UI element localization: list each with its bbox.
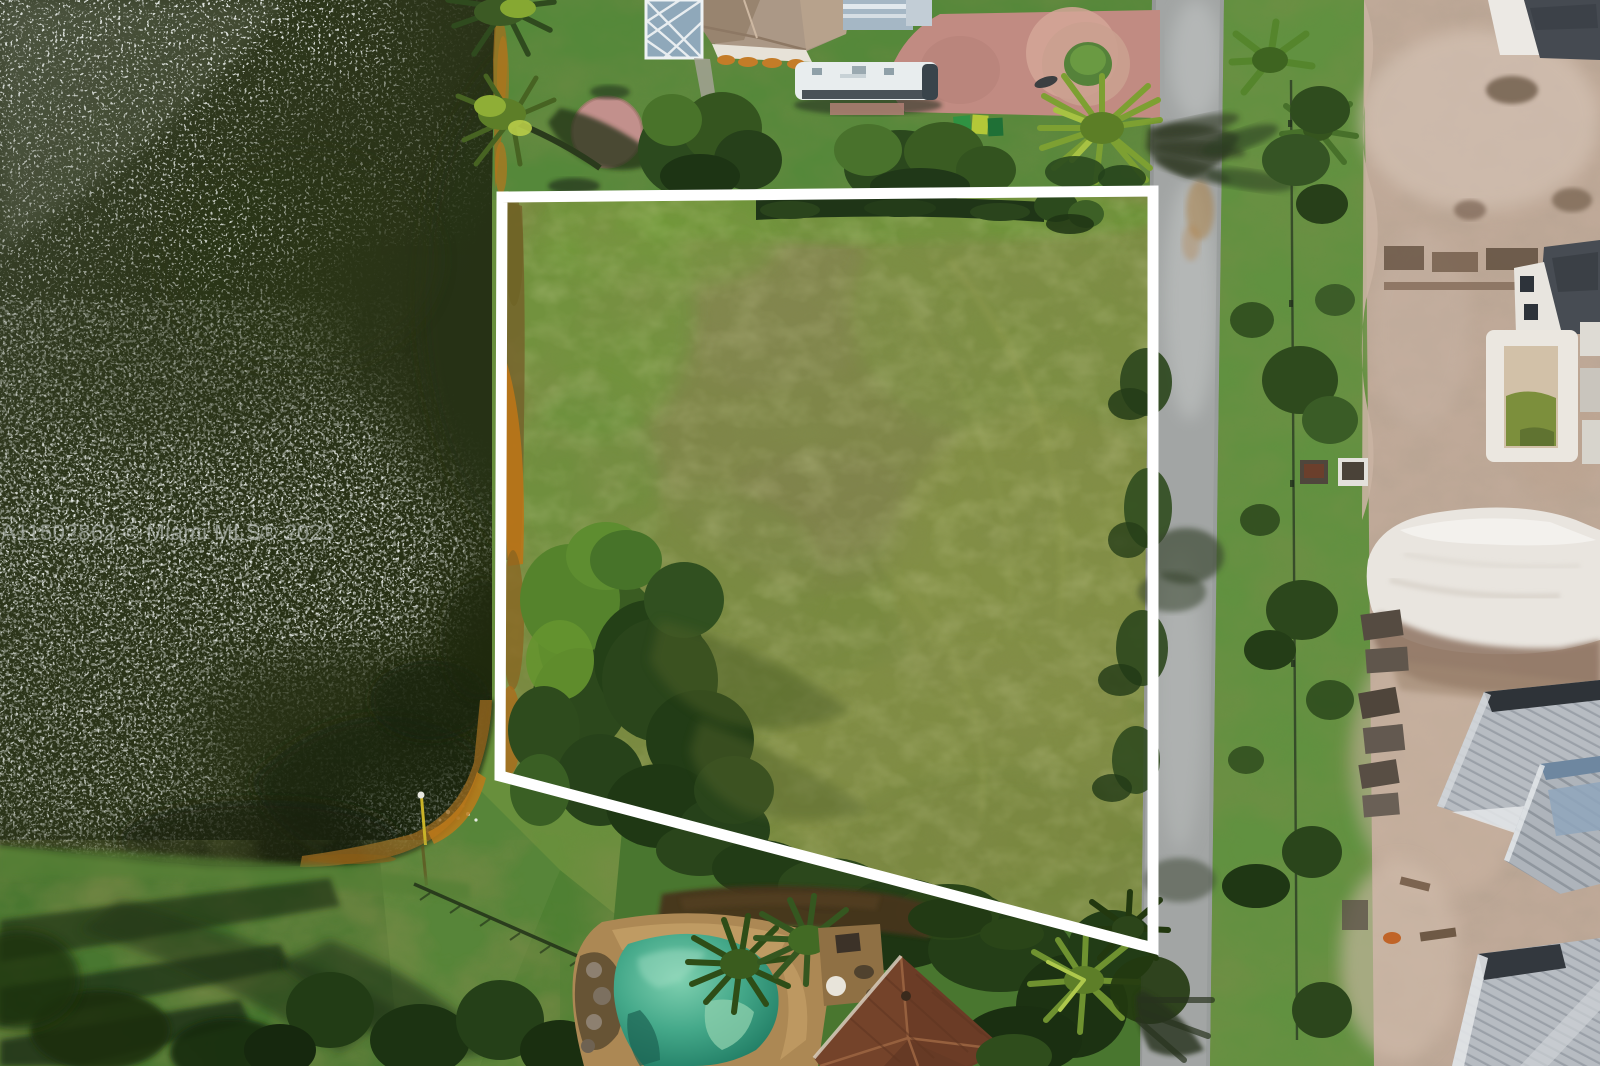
svg-text:A11502862 © Miami MLS® 2023: A11502862 © Miami MLS® 2023 — [1, 520, 335, 545]
